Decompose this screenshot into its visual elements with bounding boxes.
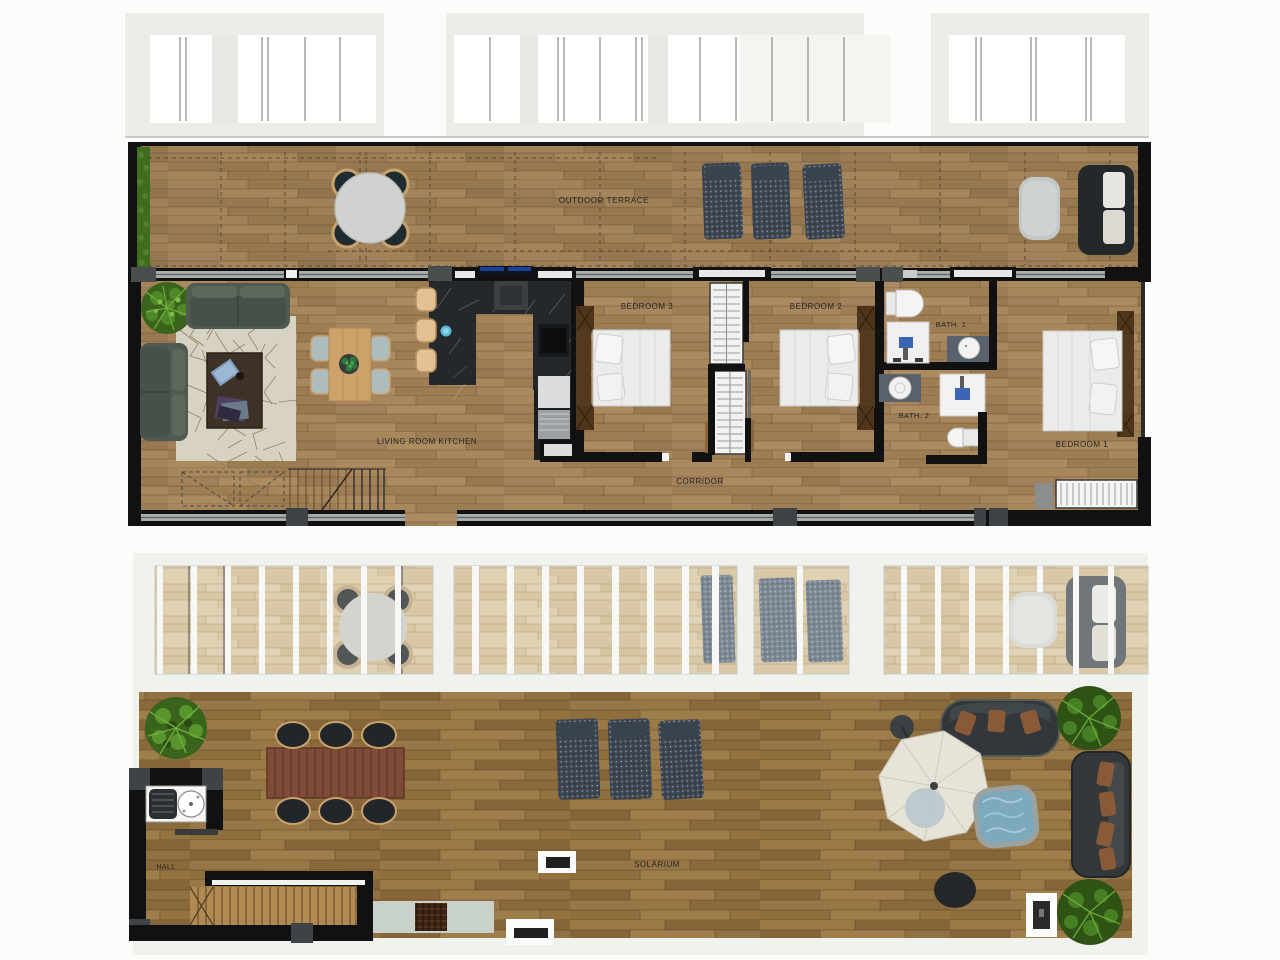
svg-text:SOLARIUM: SOLARIUM bbox=[634, 860, 680, 869]
svg-text:BEDROOM 3: BEDROOM 3 bbox=[621, 302, 674, 311]
svg-text:BEDROOM 2: BEDROOM 2 bbox=[790, 302, 843, 311]
svg-text:OUTDOOR TERRACE: OUTDOOR TERRACE bbox=[559, 196, 649, 205]
svg-text:HALL: HALL bbox=[156, 864, 175, 871]
svg-text:LIVING ROOM KITCHEN: LIVING ROOM KITCHEN bbox=[377, 437, 477, 446]
svg-text:CORRIDOR: CORRIDOR bbox=[676, 477, 724, 486]
svg-text:BATH. 1: BATH. 1 bbox=[936, 320, 967, 329]
svg-text:BEDROOM 1: BEDROOM 1 bbox=[1056, 440, 1109, 449]
svg-text:BATH. 2: BATH. 2 bbox=[899, 411, 930, 420]
